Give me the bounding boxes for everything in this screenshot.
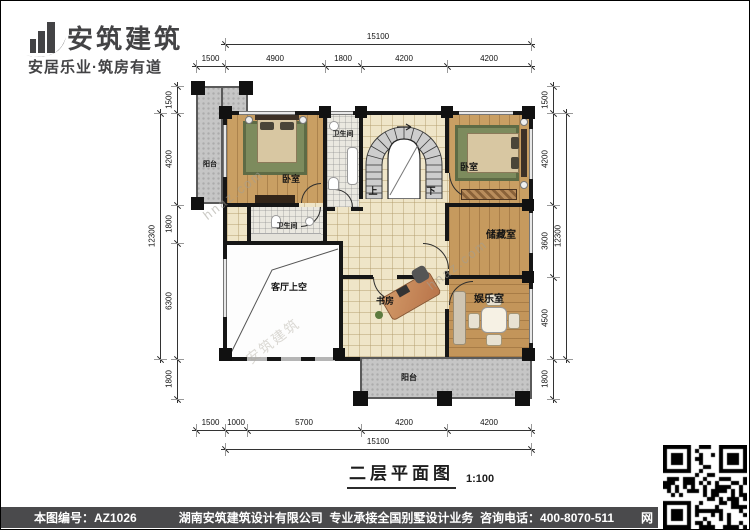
room-label-entertainment: 娱乐室 bbox=[461, 295, 517, 305]
wall bbox=[227, 203, 299, 207]
window bbox=[459, 111, 513, 115]
wall bbox=[445, 309, 449, 357]
dim-label: 4200 bbox=[395, 54, 413, 63]
dim-extension bbox=[531, 60, 532, 73]
column bbox=[522, 199, 534, 211]
dim-extension bbox=[171, 205, 184, 206]
dim-extension bbox=[171, 113, 184, 114]
column bbox=[319, 106, 331, 118]
door-arc bbox=[423, 243, 449, 269]
sheet-number: 本图编号：AZ1026 bbox=[34, 509, 137, 526]
wall bbox=[339, 241, 343, 357]
drawing-title-block: 二层平面图 1:100 bbox=[347, 459, 494, 489]
dim-label: 1800 bbox=[165, 215, 174, 233]
balcony-top-slab-b bbox=[196, 86, 223, 204]
dim-label: 1500 bbox=[202, 54, 220, 63]
stair-down-label: 下 bbox=[425, 187, 437, 196]
dim-extension bbox=[225, 38, 226, 51]
qr-code bbox=[663, 445, 747, 529]
dim-extension bbox=[547, 86, 560, 87]
room-label-bathroom-mid: 卫生间 bbox=[257, 223, 317, 230]
nightstand bbox=[299, 116, 307, 124]
dim-extension bbox=[547, 359, 560, 360]
dim-label: 12300 bbox=[148, 225, 157, 247]
dim-extension bbox=[247, 424, 248, 437]
dim-line bbox=[566, 109, 567, 363]
dim-extension bbox=[361, 60, 362, 73]
headboard bbox=[255, 115, 299, 120]
column bbox=[441, 106, 453, 118]
dim-label: 1800 bbox=[165, 370, 174, 388]
sink bbox=[329, 121, 339, 131]
dim-line bbox=[221, 449, 535, 450]
plant bbox=[375, 311, 383, 319]
drawing-scale: 1:100 bbox=[466, 473, 494, 489]
dresser bbox=[255, 195, 295, 203]
dim-extension bbox=[531, 424, 532, 437]
dim-extension bbox=[225, 60, 226, 73]
room-label-balcony-top: 阳台 bbox=[200, 161, 220, 168]
dim-line bbox=[160, 109, 161, 363]
wall bbox=[343, 275, 373, 279]
window bbox=[223, 259, 227, 317]
dim-label: 15100 bbox=[367, 32, 389, 41]
net-label: 网 bbox=[641, 509, 653, 526]
dim-extension bbox=[361, 424, 362, 437]
chair bbox=[468, 313, 480, 329]
dim-extension bbox=[531, 443, 532, 456]
dim-extension bbox=[225, 443, 226, 456]
qr-code-panel bbox=[658, 441, 750, 530]
wall bbox=[445, 203, 529, 207]
column bbox=[219, 106, 232, 119]
window bbox=[223, 125, 227, 177]
column bbox=[333, 348, 345, 360]
game-table bbox=[481, 307, 507, 333]
dim-label: 4200 bbox=[480, 54, 498, 63]
dim-label: 1500 bbox=[165, 91, 174, 109]
column bbox=[353, 391, 368, 406]
nightstand bbox=[520, 181, 528, 189]
column bbox=[437, 391, 452, 406]
room-storage bbox=[449, 207, 529, 275]
window bbox=[529, 289, 533, 343]
column bbox=[219, 348, 232, 361]
company-info: 湖南安筑建筑设计有限公司 专业承接全国别墅设计业务 咨询电话：400-8070-… bbox=[179, 509, 614, 526]
dim-extension bbox=[560, 113, 573, 114]
room-label-living-void: 客厅上空 bbox=[257, 283, 321, 292]
dim-extension bbox=[196, 424, 197, 437]
dim-label: 1000 bbox=[227, 418, 245, 427]
pillow bbox=[260, 122, 274, 130]
dim-extension bbox=[560, 359, 573, 360]
wall bbox=[445, 207, 449, 241]
dim-label: 4200 bbox=[395, 418, 413, 427]
dim-extension bbox=[547, 277, 560, 278]
room-label-study: 书房 bbox=[363, 297, 407, 306]
wall bbox=[351, 207, 363, 211]
column bbox=[522, 271, 534, 283]
dim-extension bbox=[225, 424, 226, 437]
void-diagonal-mark bbox=[227, 245, 339, 357]
headboard bbox=[521, 129, 527, 177]
room-label-bedroom-left: 卧室 bbox=[271, 175, 311, 184]
wall bbox=[323, 207, 335, 211]
design-sheet: 安筑建筑 安居乐业·筑房有道 1500490018004200420015100… bbox=[0, 0, 750, 530]
chair bbox=[486, 334, 502, 346]
window bbox=[529, 129, 533, 179]
room-label-balcony-bottom: 阳台 bbox=[371, 374, 447, 382]
wardrobe bbox=[461, 189, 517, 200]
wall bbox=[445, 279, 449, 285]
dim-label: 12300 bbox=[554, 225, 563, 247]
nightstand bbox=[245, 116, 253, 124]
dim-label: 4500 bbox=[541, 309, 550, 327]
window-wall bbox=[233, 357, 335, 361]
column bbox=[515, 391, 530, 406]
dim-extension bbox=[171, 86, 184, 87]
dim-label: 4900 bbox=[266, 54, 284, 63]
dim-label: 4200 bbox=[541, 150, 550, 168]
pillow bbox=[280, 122, 294, 130]
dim-extension bbox=[154, 359, 167, 360]
dim-label: 1800 bbox=[334, 54, 352, 63]
room-label-storage: 储藏室 bbox=[467, 231, 535, 241]
dim-extension bbox=[154, 113, 167, 114]
dim-label: 3600 bbox=[541, 232, 550, 250]
column bbox=[522, 106, 535, 119]
bathtub bbox=[347, 147, 358, 185]
dim-extension bbox=[196, 60, 197, 73]
bath-counter bbox=[251, 233, 321, 241]
dim-extension bbox=[325, 60, 326, 73]
building-outline: 上 下 bbox=[223, 111, 533, 361]
room-label-bedroom-right: 卧室 bbox=[447, 163, 491, 172]
dim-extension bbox=[447, 60, 448, 73]
column bbox=[239, 81, 253, 95]
dim-label: 6300 bbox=[165, 292, 174, 310]
column bbox=[355, 106, 367, 118]
stair-up-label: 上 bbox=[367, 187, 379, 196]
wall bbox=[445, 275, 529, 279]
dim-label: 1500 bbox=[541, 91, 550, 109]
dim-label: 1800 bbox=[541, 370, 550, 388]
dim-extension bbox=[171, 359, 184, 360]
dim-extension bbox=[531, 38, 532, 51]
column bbox=[191, 81, 205, 95]
wall bbox=[227, 241, 327, 245]
pillow bbox=[511, 157, 519, 169]
pillow bbox=[511, 137, 519, 149]
dim-extension bbox=[171, 243, 184, 244]
dim-label: 4200 bbox=[480, 418, 498, 427]
dim-label: 4200 bbox=[165, 150, 174, 168]
chair bbox=[508, 313, 520, 329]
dim-extension bbox=[447, 424, 448, 437]
dim-label: 1500 bbox=[202, 418, 220, 427]
dim-extension bbox=[547, 399, 560, 400]
dim-line bbox=[221, 44, 535, 45]
window bbox=[329, 111, 353, 115]
dim-extension bbox=[171, 399, 184, 400]
toilet bbox=[328, 177, 339, 190]
footer-bar: 本图编号：AZ1026 湖南安筑建筑设计有限公司 专业承接全国别墅设计业务 咨询… bbox=[1, 507, 662, 528]
dim-label: 15100 bbox=[367, 437, 389, 446]
room-label-bathroom-top: 卫生间 bbox=[327, 131, 359, 138]
nightstand bbox=[520, 118, 528, 126]
column bbox=[522, 348, 535, 361]
dim-extension bbox=[547, 205, 560, 206]
column bbox=[191, 197, 204, 210]
dim-label: 5700 bbox=[295, 418, 313, 427]
drawing-title: 二层平面图 bbox=[347, 459, 456, 489]
dim-extension bbox=[547, 113, 560, 114]
room-living-void bbox=[227, 245, 339, 357]
